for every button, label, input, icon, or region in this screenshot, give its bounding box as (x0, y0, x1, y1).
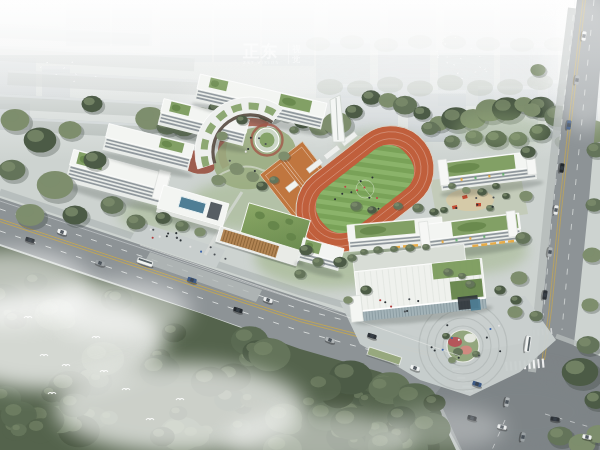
watermark-vertical-char-2: 觉 (292, 54, 301, 64)
watermark-overlay: 正东 ZST VISION 视 觉 (0, 0, 600, 450)
watermark-vertical-char-1: 视 (292, 44, 301, 54)
watermark: 正东 ZST VISION 视 觉 (242, 42, 301, 65)
watermark-brand: 正东 (242, 42, 279, 61)
aerial-rendering-image: 正东 ZST VISION 视 觉 (0, 0, 600, 450)
watermark-tagline: ZST VISION (243, 60, 280, 65)
